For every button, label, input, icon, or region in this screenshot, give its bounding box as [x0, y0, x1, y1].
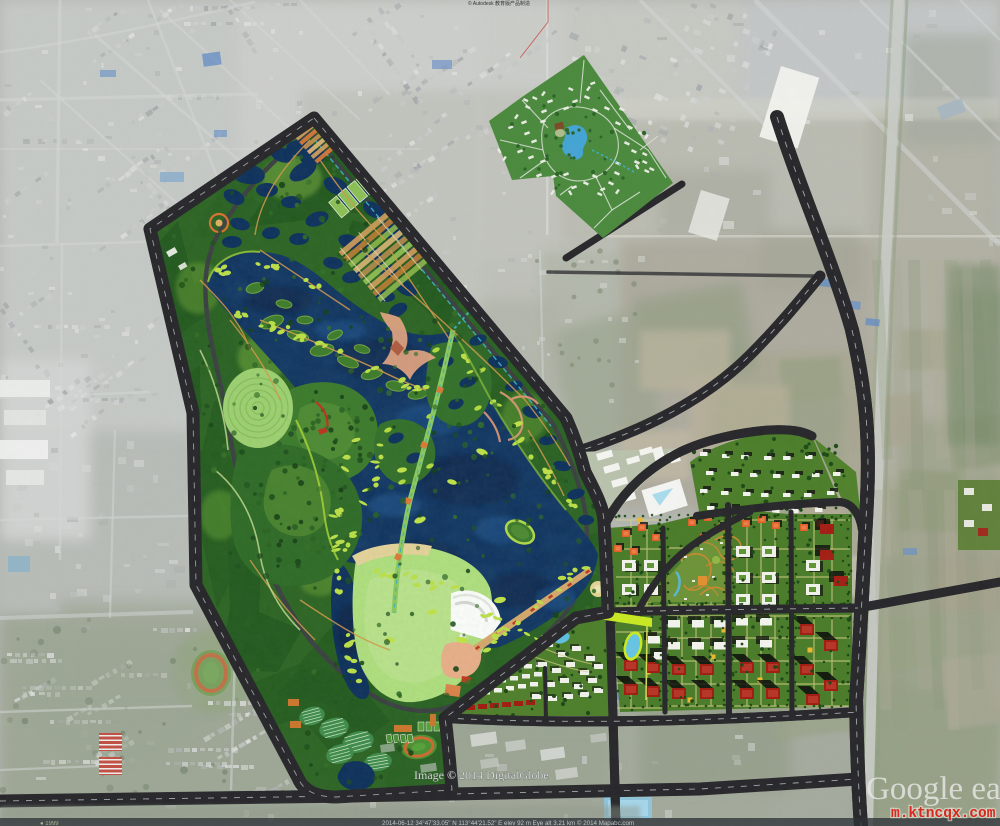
- svg-text:2014-06-12 34°47'33.05" N: 2014-06-12 34°47'33.05" N 113°44'21.52" …: [382, 820, 634, 826]
- svg-text:m.ktncqx.com: m.ktncqx.com: [891, 806, 996, 822]
- svg-text:Google ear: Google ear: [866, 771, 1000, 807]
- svg-text:Image © 2014 DigitalGlobe: Image © 2014 DigitalGlobe: [414, 768, 549, 782]
- svg-text:● 1999: ● 1999: [40, 821, 59, 826]
